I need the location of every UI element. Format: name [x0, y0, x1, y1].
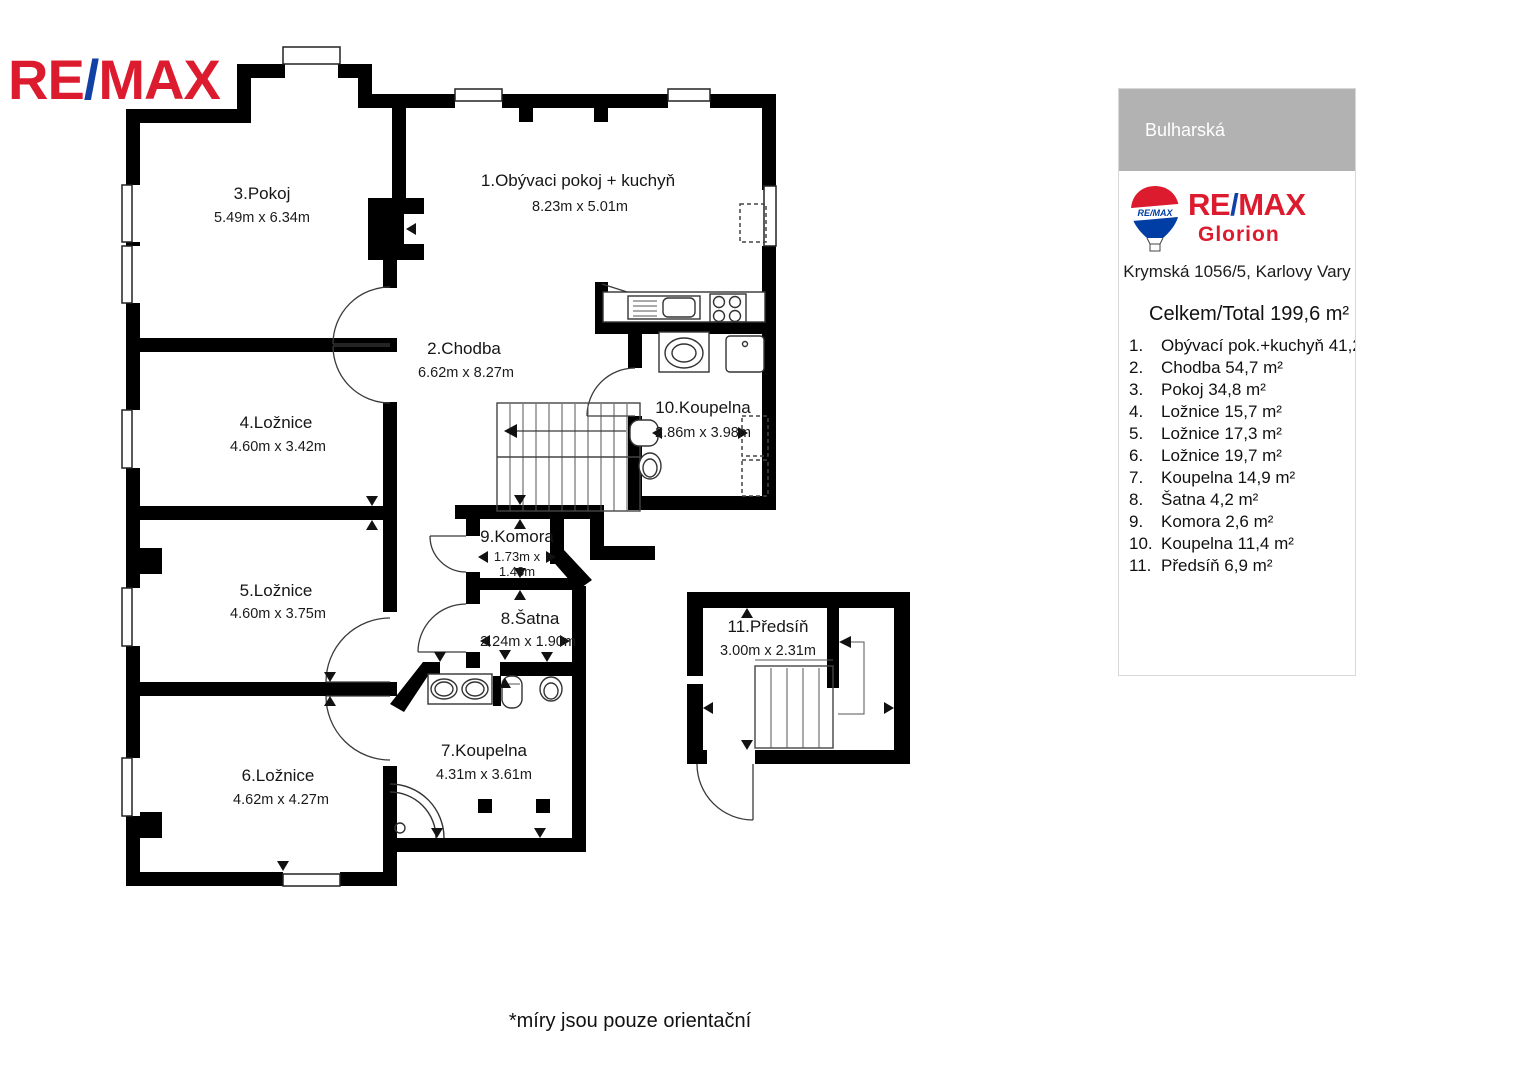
room-dims-loznice6: 4.62m x 4.27m [233, 792, 329, 808]
item-label: Pokoj 34,8 m² [1161, 379, 1266, 401]
room-label-koupelna7: 7.Koupelna [441, 741, 528, 760]
room-label-predsin: 11.Předsíň [728, 617, 809, 636]
balloon-label: RE/MAX [1137, 208, 1173, 218]
list-item: 4.Ložnice 15,7 m² [1127, 401, 1355, 423]
room-dims-loznice5: 4.60m x 3.75m [230, 606, 326, 622]
list-item: 1.Obývací pok.+kuchyň 41,2 [1127, 335, 1355, 357]
list-item: 2.Chodba 54,7 m² [1127, 357, 1355, 379]
item-label: Obývací pok.+kuchyň 41,2 [1161, 335, 1355, 357]
kitchen-counter [603, 292, 765, 322]
room-label-satna: 8.Šatna [501, 609, 560, 628]
room-label-obyvaci: 1.Obývaci pokoj + kuchyň [481, 171, 675, 190]
room-label-chodba: 2.Chodba [427, 339, 501, 358]
item-label: Komora 2,6 m² [1161, 511, 1273, 533]
item-label: Koupelna 14,9 m² [1161, 467, 1295, 489]
room-labels: 3.Pokoj 5.49m x 6.34m 1.Obývaci pokoj + … [214, 171, 816, 808]
item-number: 8. [1127, 489, 1161, 511]
list-item: 5.Ložnice 17,3 m² [1127, 423, 1355, 445]
room-label-loznice6: 6.Ložnice [242, 766, 315, 785]
list-item: 3.Pokoj 34,8 m² [1127, 379, 1355, 401]
list-item: 7.Koupelna 14,9 m² [1127, 467, 1355, 489]
list-item: 11.Předsíň 6,9 m² [1127, 555, 1355, 577]
logo-re: RE [8, 48, 84, 111]
brand-slash: / [1230, 187, 1238, 222]
item-label: Ložnice 17,3 m² [1161, 423, 1282, 445]
room-dims-chodba: 6.62m x 8.27m [418, 365, 514, 381]
brand-wordmark: RE/MAX [1188, 189, 1306, 220]
windows [122, 47, 776, 886]
item-label: Chodba 54,7 m² [1161, 357, 1283, 379]
office-address: Krymská 1056/5, Karlovy Vary [1119, 262, 1355, 282]
brand-text: RE/MAX Glorion [1188, 189, 1306, 247]
room-label-loznice5: 5.Ložnice [240, 581, 313, 600]
info-panel: Bulharská RE/MAX RE/MAX Glorion Krymská … [1118, 88, 1356, 676]
room-dims-loznice4: 4.60m x 3.42m [230, 439, 326, 455]
room-dims-obyvaci: 8.23m x 5.01m [532, 199, 628, 215]
brand-re: RE [1188, 187, 1230, 222]
list-item: 6.Ložnice 19,7 m² [1127, 445, 1355, 467]
room-dims-koupelna7: 4.31m x 3.61m [436, 767, 532, 783]
office-name: Glorion [1198, 223, 1306, 247]
street-banner: Bulharská [1119, 89, 1355, 171]
item-label: Ložnice 15,7 m² [1161, 401, 1282, 423]
item-number: 2. [1127, 357, 1161, 379]
item-number: 11. [1127, 555, 1161, 577]
item-label: Ložnice 19,7 m² [1161, 445, 1282, 467]
room-dims-koupelna10: 2.86m x 3.98m [655, 425, 751, 441]
room-label-loznice4: 4.Ložnice [240, 413, 313, 432]
room-dims-komora-2: 1.48m [499, 564, 535, 579]
room-label-koupelna10: 10.Koupelna [655, 398, 751, 417]
item-number: 5. [1127, 423, 1161, 445]
remax-logo: RE/MAX [8, 52, 220, 108]
list-item: 8.Šatna 4,2 m² [1127, 489, 1355, 511]
brand-max: MAX [1238, 187, 1305, 222]
room-dims-predsin: 3.00m x 2.31m [720, 643, 816, 659]
room-area-list: 1.Obývací pok.+kuchyň 41,2 2.Chodba 54,7… [1119, 335, 1355, 577]
list-item: 10.Koupelna 11,4 m² [1127, 533, 1355, 555]
list-item: 9.Komora 2,6 m² [1127, 511, 1355, 533]
street-name: Bulharská [1145, 120, 1225, 141]
room-label-komora: 9.Komora [480, 527, 554, 546]
brand-row: RE/MAX RE/MAX Glorion [1119, 171, 1355, 253]
item-label: Šatna 4,2 m² [1161, 489, 1258, 511]
logo-slash: / [84, 48, 99, 111]
item-number: 10. [1127, 533, 1161, 555]
item-number: 1. [1127, 335, 1161, 357]
total-area: Celkem/Total 199,6 m² [1119, 303, 1355, 326]
item-number: 6. [1127, 445, 1161, 467]
room-dims-satna: 2.24m x 1.90m [480, 634, 576, 650]
item-number: 4. [1127, 401, 1161, 423]
remax-balloon-icon: RE/MAX [1126, 183, 1184, 253]
stairs-main [497, 403, 640, 511]
logo-max: MAX [98, 48, 219, 111]
room-dims-komora-1: 1.73m x [494, 549, 541, 564]
disclaimer-note: *míry jsou pouze orientační [430, 1010, 830, 1033]
item-label: Koupelna 11,4 m² [1161, 533, 1294, 555]
item-label: Předsíň 6,9 m² [1161, 555, 1273, 577]
item-number: 7. [1127, 467, 1161, 489]
room-dims-pokoj3: 5.49m x 6.34m [214, 210, 310, 226]
item-number: 3. [1127, 379, 1161, 401]
item-number: 9. [1127, 511, 1161, 533]
room-label-pokoj3: 3.Pokoj [234, 184, 291, 203]
